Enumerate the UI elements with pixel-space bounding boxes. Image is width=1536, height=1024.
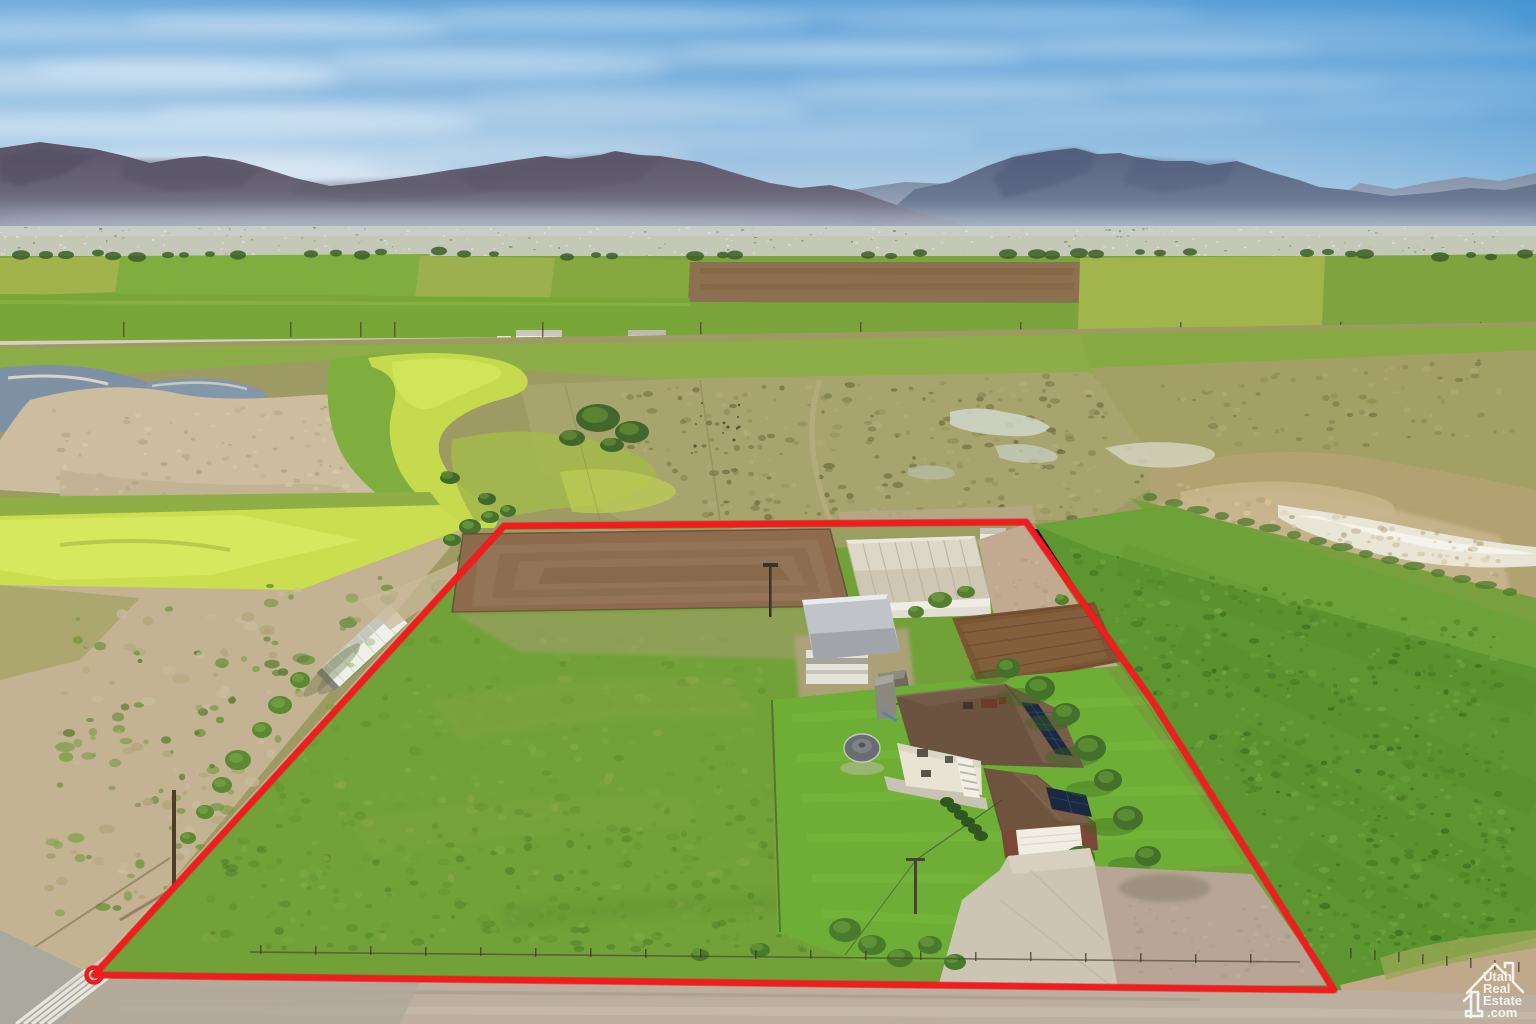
svg-text:.com: .com	[1487, 1005, 1517, 1020]
